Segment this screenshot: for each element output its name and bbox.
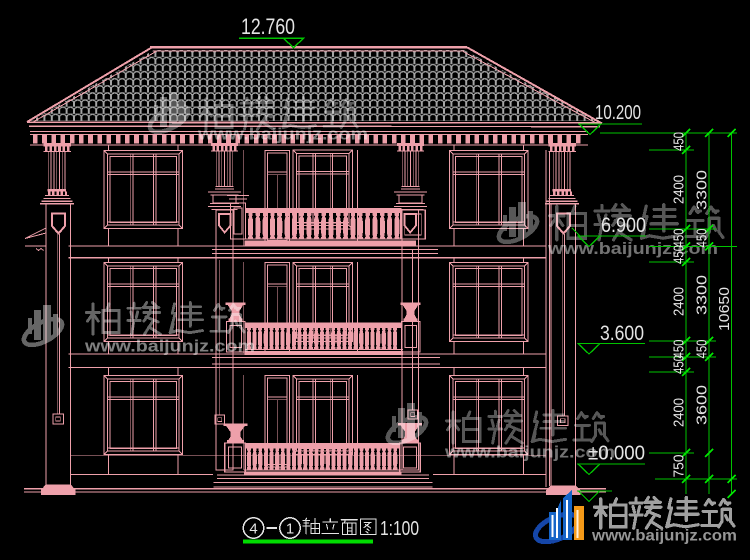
svg-text:1: 1 [286,521,294,538]
svg-text:3600: 3600 [694,385,711,425]
svg-text:10.200: 10.200 [595,102,641,124]
svg-text:10650: 10650 [716,287,733,331]
svg-text:www.baijunjz.com: www.baijunjz.com [84,338,255,356]
svg-text:±0.000: ±0.000 [588,443,645,465]
svg-text:2400: 2400 [671,287,688,316]
svg-text:450: 450 [671,245,688,264]
svg-text:2400: 2400 [671,398,688,427]
svg-text:www.baijunjz.com: www.baijunjz.com [197,126,368,144]
svg-text:3.600: 3.600 [600,322,644,345]
svg-text:450: 450 [671,132,688,151]
svg-text:450: 450 [671,355,688,374]
svg-text:3300: 3300 [694,275,711,315]
svg-text:6.900: 6.900 [601,214,646,237]
svg-text:450: 450 [694,340,711,359]
svg-text:450: 450 [694,229,711,248]
svg-text:4: 4 [249,521,257,538]
svg-text:1:100: 1:100 [380,518,419,540]
svg-text:12.760: 12.760 [241,14,295,39]
svg-text:www.baijunjz.com: www.baijunjz.com [591,528,737,545]
svg-text:3300: 3300 [694,170,711,210]
svg-text:2400: 2400 [671,175,688,204]
svg-text:750: 750 [671,455,688,478]
svg-text:450: 450 [671,229,688,248]
svg-text:www.baijunjz.com: www.baijunjz.com [547,240,718,258]
